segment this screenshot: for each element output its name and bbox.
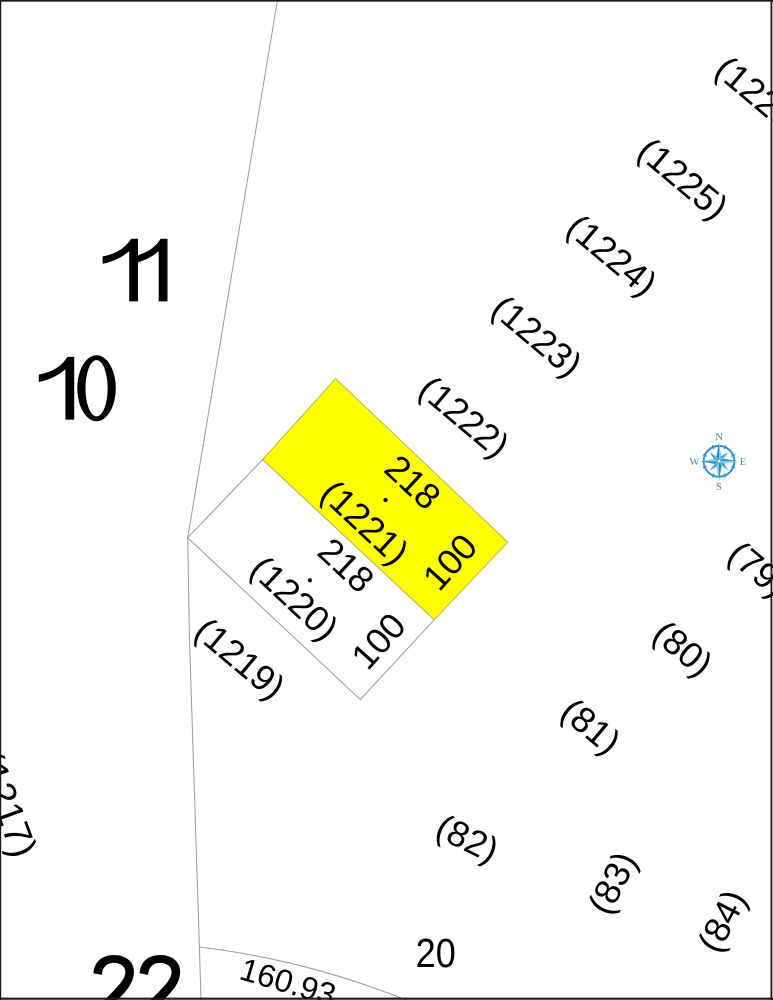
svg-text:W: W — [690, 457, 700, 468]
svg-text:S: S — [716, 482, 722, 493]
svg-text:E: E — [740, 457, 746, 468]
svg-text:20: 20 — [416, 931, 456, 976]
svg-text:N: N — [715, 432, 723, 443]
